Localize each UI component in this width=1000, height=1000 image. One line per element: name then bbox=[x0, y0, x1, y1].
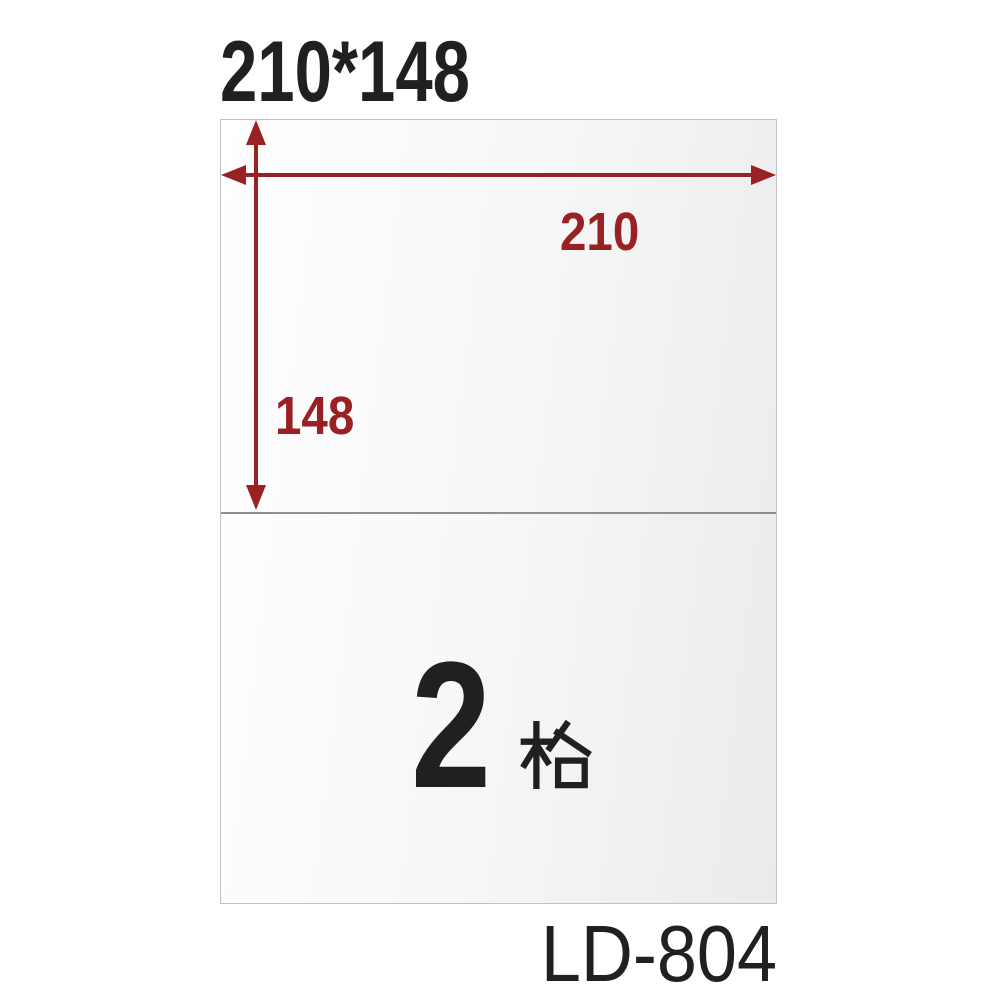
model-number: LD-804 bbox=[276, 914, 777, 994]
cell-divider-line bbox=[221, 512, 776, 514]
width-dimension-arrow-icon bbox=[220, 158, 777, 192]
width-dimension-label: 210 bbox=[560, 205, 639, 259]
size-title: 210*148 bbox=[220, 29, 470, 115]
cell-count-number: 2 bbox=[411, 636, 491, 816]
product-diagram: 210*148 210 148 2 LD-804 bbox=[0, 0, 1000, 1000]
cell-unit-glyph bbox=[519, 720, 593, 790]
height-dimension-label: 148 bbox=[275, 389, 354, 443]
height-dimension-arrow-icon bbox=[239, 118, 273, 512]
label-sheet bbox=[220, 119, 777, 904]
